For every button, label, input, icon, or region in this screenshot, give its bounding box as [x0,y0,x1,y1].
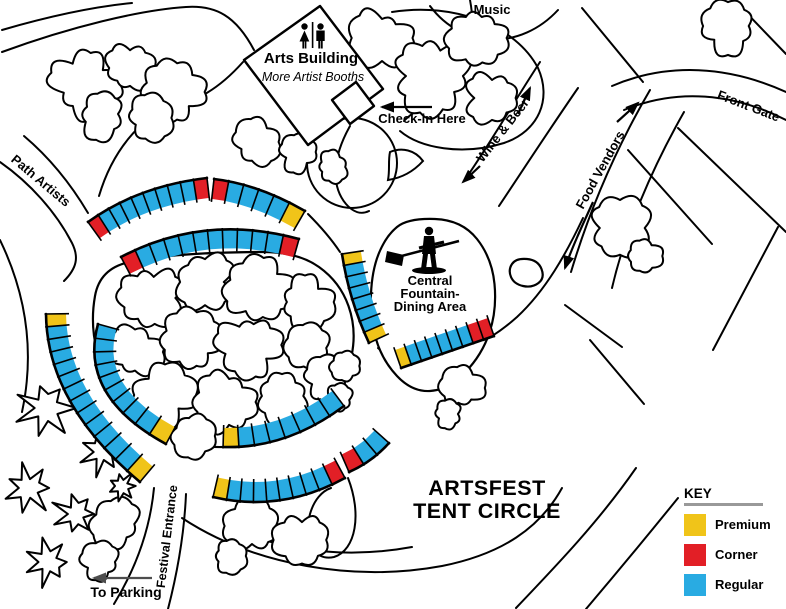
road-diagonal-3 [678,128,786,232]
bush [232,117,280,167]
male-icon-head [317,23,323,29]
road-front-gate-upper [612,70,786,92]
road-diagonal-1 [582,8,643,82]
statue-head [425,227,433,235]
key-row-regular: Regular [684,574,784,596]
bush [216,539,247,575]
restroom-icon [299,22,324,49]
bush [435,399,460,429]
tent-divider [93,351,117,352]
pine-tree [6,462,50,512]
female-icon-head [301,23,307,29]
map-title: ARTSFEST TENT CIRCLE [375,477,599,523]
key-swatch-corner [684,544,706,566]
label-fountain-line3: Dining Area [394,299,467,314]
bush [82,91,121,142]
label-front-gate: Front Gate [715,87,782,125]
key-row-premium: Premium [684,514,784,536]
tent-divider [223,425,224,449]
map-stage: MusicArts BuildingMore Artist BoothsChec… [0,0,786,609]
tent-regular [253,482,266,502]
road-diagonal-4 [713,227,778,350]
label-arts-building: Arts Building [264,50,358,67]
key-underline [684,503,763,506]
small-pond [510,259,543,287]
tent-regular [237,229,253,249]
bush [701,0,751,56]
bush [628,239,663,272]
pine-tree [27,538,67,588]
bush [438,365,486,405]
road-top-left-upper [2,3,132,30]
food-vendors-arrow-down [565,202,593,268]
tent-regular [222,229,237,248]
key-row-corner: Corner [684,544,784,566]
key-panel: KEY Premium Corner Regular [684,486,784,596]
key-label-corner: Corner [715,547,758,562]
bush [444,12,509,66]
bush [89,497,140,549]
key-heading: KEY [684,486,784,501]
bush [272,516,328,565]
road-top-left-lower [2,7,254,52]
bush [79,541,118,582]
label-music: Music [474,2,511,17]
bush [319,150,347,184]
tent-segment-outer-top-right [211,178,305,231]
key-label-premium: Premium [715,517,771,532]
pine-tree [52,494,94,531]
label-checkin: Check-in Here [378,111,465,126]
road-left-edge [0,240,28,412]
road-ring-northeast [308,214,340,252]
tent-segment-outer-southeast [340,428,390,473]
map-title-line1: ARTSFEST [375,477,599,500]
key-swatch-premium [684,514,706,536]
key-label-regular: Regular [715,577,763,592]
road-island [388,150,423,180]
restroom-divider [312,22,314,48]
label-path-artists: Path Artists [8,152,73,210]
label-to-parking: To Parking [90,584,161,600]
tent-divider [237,228,238,252]
label-arts-building-sub: More Artist Booths [262,70,364,84]
road-diagonal-5 [590,340,644,404]
tent-segment-outer-top-left [87,177,210,241]
tent-segment-outer-bottom [213,458,346,504]
map-title-line2: TENT CIRCLE [375,500,599,523]
key-swatch-regular [684,574,706,596]
tent-divider [222,228,223,252]
tent-premium [223,428,239,447]
road-diagonal-7 [565,305,622,347]
